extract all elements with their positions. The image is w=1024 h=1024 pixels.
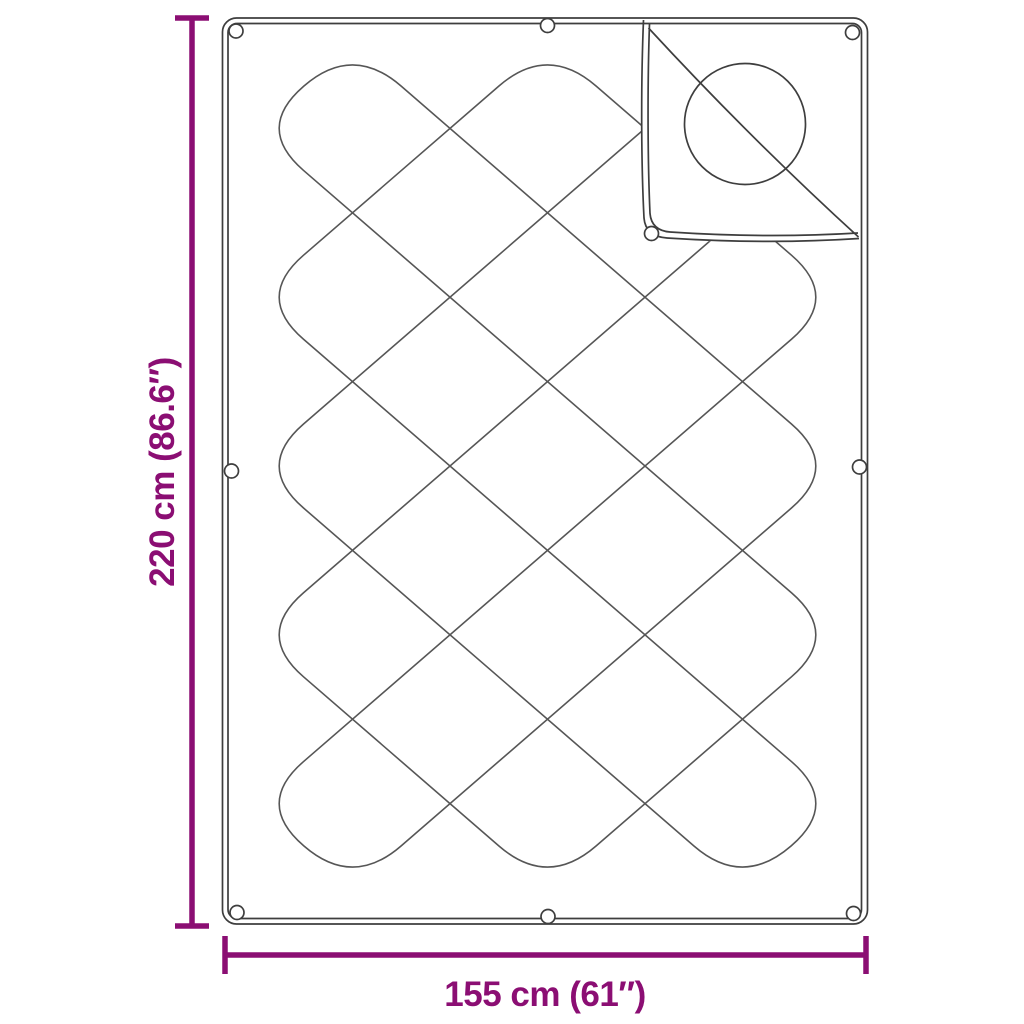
height-dimension-label: 220 cm (86.6″) — [143, 357, 182, 587]
product-dimension-diagram: 220 cm (86.6″) 155 cm (61″) — [0, 0, 1024, 1024]
height-dimension: 220 cm (86.6″) — [143, 18, 209, 926]
corner-flap — [641, 19, 866, 243]
snap-fastener-flap-corner — [645, 227, 659, 241]
snap-fastener-bottom-middle — [541, 910, 555, 924]
snap-fastener-bottom-right — [847, 907, 861, 921]
diagram-canvas: 220 cm (86.6″) 155 cm (61″) — [0, 0, 1024, 1024]
snap-fastener-top-middle — [541, 19, 555, 33]
width-dimension: 155 cm (61″) — [225, 936, 866, 1014]
width-dimension-label: 155 cm (61″) — [444, 975, 645, 1014]
flap-fill — [641, 19, 866, 243]
snap-fastener-right-middle — [853, 460, 867, 474]
snap-fastener-top-right — [846, 26, 860, 40]
snap-fastener-left-middle — [225, 464, 239, 478]
snap-fastener-top-left — [229, 24, 243, 38]
blanket — [223, 18, 868, 924]
snap-fastener-bottom-left — [230, 906, 244, 920]
